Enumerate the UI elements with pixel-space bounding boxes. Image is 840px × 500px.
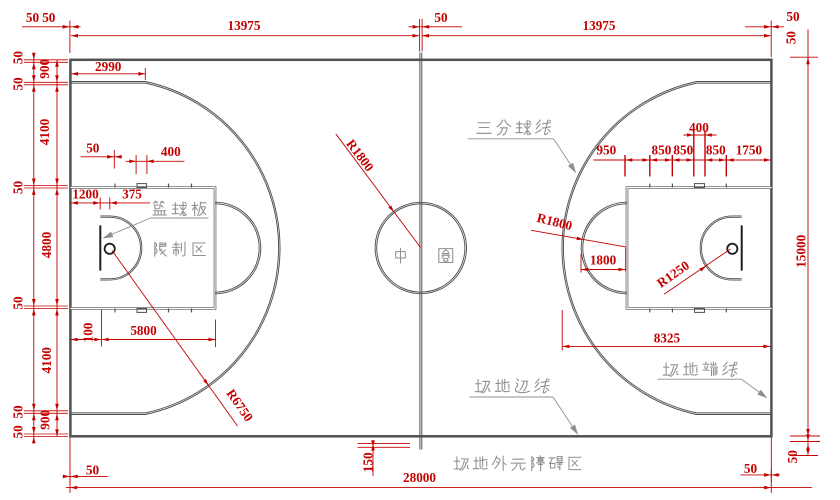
svg-text:5800: 5800 <box>130 323 157 338</box>
svg-text:100: 100 <box>80 322 95 342</box>
svg-text:13975: 13975 <box>228 18 261 33</box>
svg-text:400: 400 <box>161 144 181 159</box>
svg-text:50: 50 <box>26 10 40 25</box>
svg-text:13975: 13975 <box>583 18 616 33</box>
svg-text:4100: 4100 <box>39 347 54 374</box>
svg-text:50: 50 <box>42 10 56 25</box>
svg-text:150: 150 <box>361 452 376 472</box>
svg-text:850: 850 <box>673 142 693 157</box>
svg-text:4800: 4800 <box>39 231 54 258</box>
svg-text:15000: 15000 <box>794 234 809 267</box>
svg-text:400: 400 <box>689 120 709 135</box>
svg-text:50: 50 <box>783 31 798 45</box>
svg-text:50: 50 <box>785 450 800 464</box>
svg-text:50: 50 <box>11 425 26 439</box>
svg-text:375: 375 <box>122 187 142 202</box>
svg-text:8325: 8325 <box>654 330 681 345</box>
svg-text:50: 50 <box>434 10 448 25</box>
svg-text:900: 900 <box>38 410 53 430</box>
svg-text:50: 50 <box>11 181 26 195</box>
svg-text:50: 50 <box>11 77 26 91</box>
svg-text:50: 50 <box>86 462 100 477</box>
svg-text:50: 50 <box>786 9 800 24</box>
svg-text:850: 850 <box>652 142 672 157</box>
svg-text:50: 50 <box>744 461 758 476</box>
svg-text:900: 900 <box>37 59 52 79</box>
svg-text:1800: 1800 <box>590 252 617 267</box>
svg-text:50: 50 <box>11 405 26 419</box>
svg-text:4100: 4100 <box>37 118 52 145</box>
svg-text:1750: 1750 <box>736 142 763 157</box>
svg-text:2990: 2990 <box>95 59 122 74</box>
svg-text:850: 850 <box>706 142 726 157</box>
svg-text:28000: 28000 <box>403 470 436 485</box>
svg-text:50: 50 <box>11 296 26 310</box>
svg-text:950: 950 <box>596 142 616 157</box>
svg-text:50: 50 <box>11 51 26 65</box>
svg-text:1200: 1200 <box>72 187 99 202</box>
svg-text:50: 50 <box>86 141 100 156</box>
